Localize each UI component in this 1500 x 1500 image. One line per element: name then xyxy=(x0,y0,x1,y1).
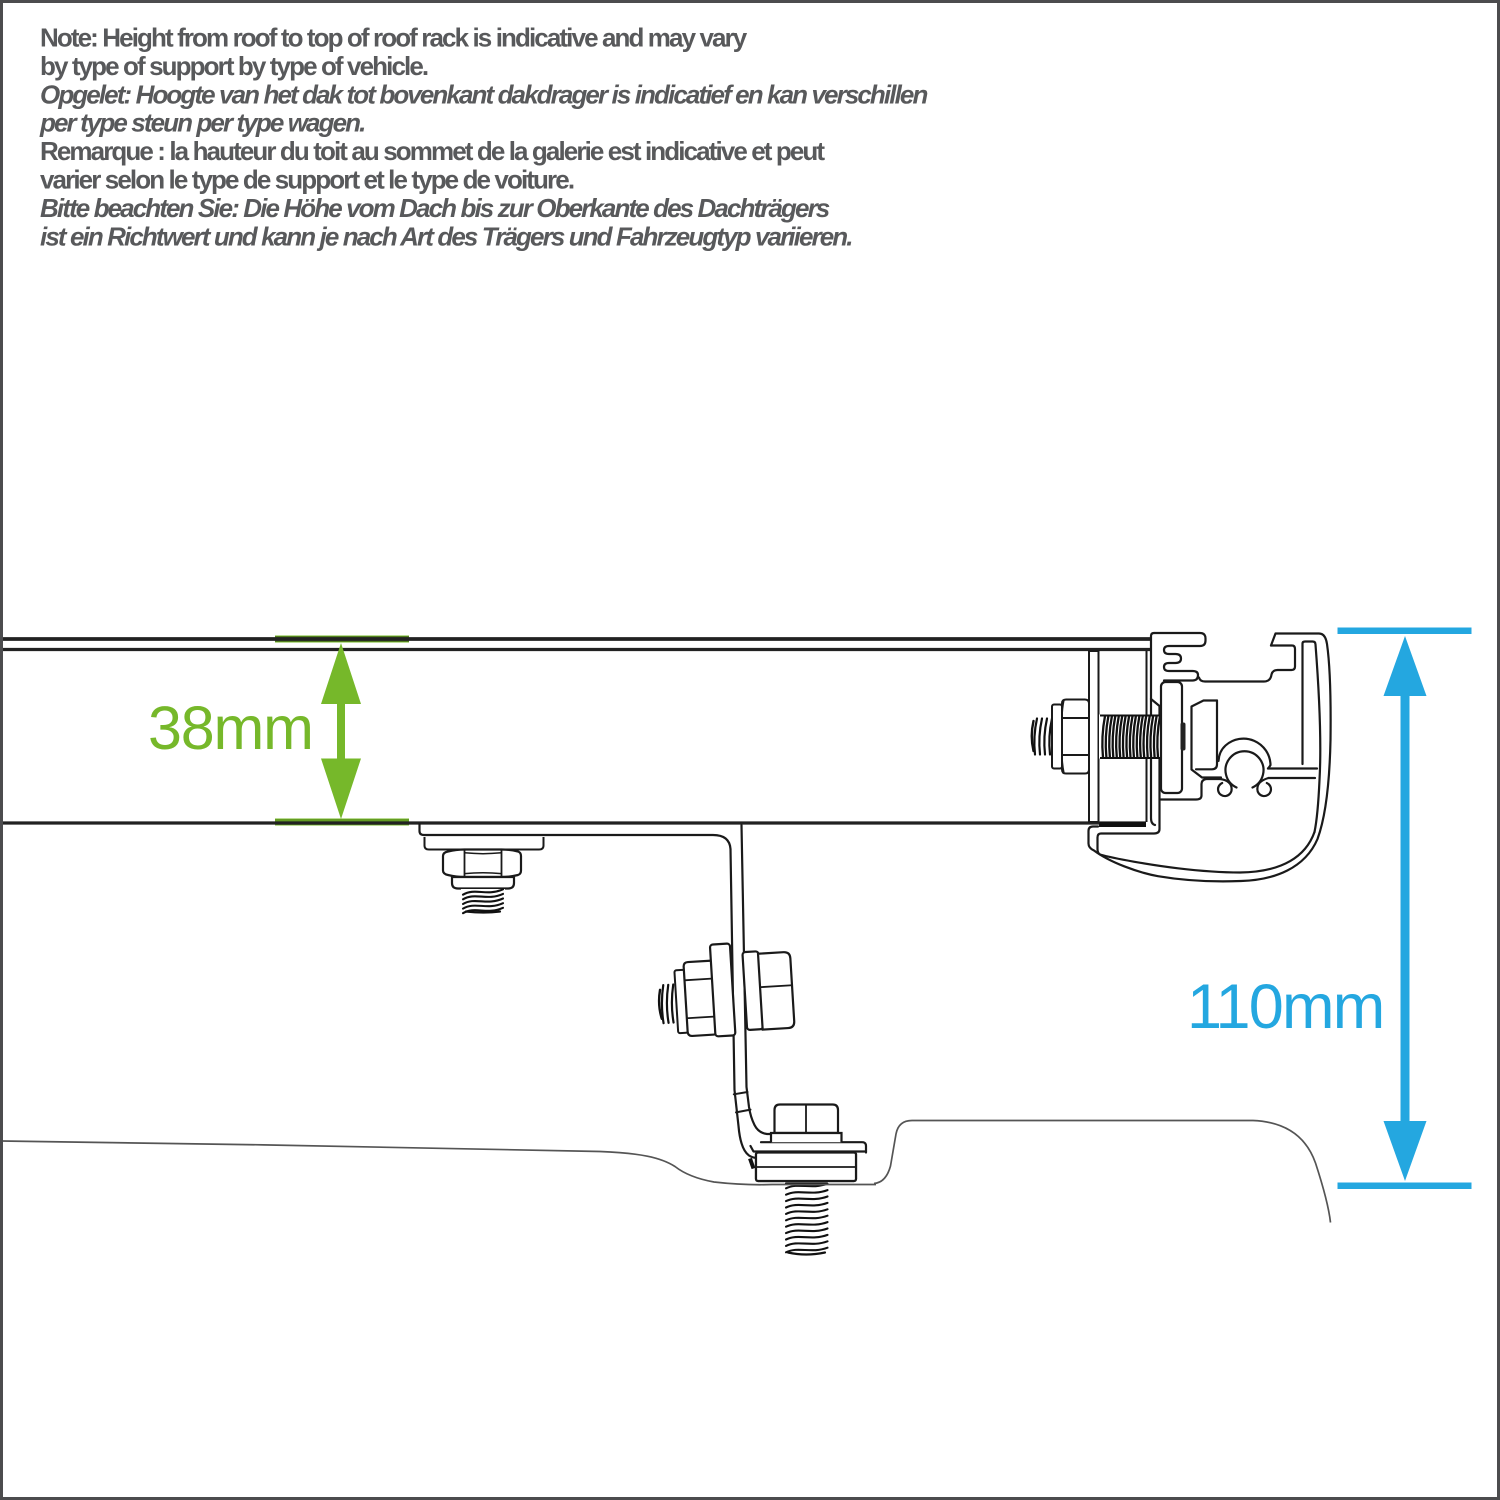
svg-text:Bitte beachten Sie: Die Höhe v: Bitte beachten Sie: Die Höhe vom Dach bi… xyxy=(40,193,830,223)
svg-text:Note: Height from roof to top: Note: Height from roof to top of roof ra… xyxy=(40,23,748,53)
svg-text:by type of support by type of: by type of support by type of vehicle. xyxy=(40,51,428,81)
svg-text:varier selon le type de suppor: varier selon le type de support et le ty… xyxy=(40,165,574,195)
svg-text:ist ein Richtwert und kann je: ist ein Richtwert und kann je nach Art d… xyxy=(40,221,852,251)
svg-text:38mm: 38mm xyxy=(148,694,313,762)
svg-text:per type steun per type wagen.: per type steun per type wagen. xyxy=(39,108,364,138)
svg-text:Opgelet: Hoogte van het dak to: Opgelet: Hoogte van het dak tot bovenkan… xyxy=(40,79,927,109)
svg-text:110mm: 110mm xyxy=(1187,972,1383,1042)
svg-text:Remarque : la hauteur du toit: Remarque : la hauteur du toit au sommet … xyxy=(40,136,825,166)
